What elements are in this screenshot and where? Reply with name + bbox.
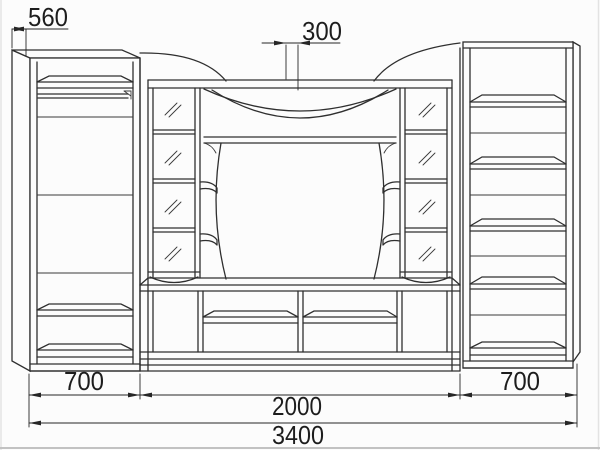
tv-niche <box>200 137 400 279</box>
left-glass-column <box>148 88 200 283</box>
right-bookcase-section <box>463 42 580 368</box>
shelf-bracket <box>204 143 216 153</box>
left-top-slab <box>12 50 140 58</box>
dimension-label-300: 300 <box>302 16 342 46</box>
glass-shelf <box>405 130 447 232</box>
barrel-curve-left <box>216 143 226 279</box>
right-side-panel <box>573 42 580 362</box>
dimension-label-2000: 2000 <box>272 391 322 421</box>
glass-shelf <box>153 130 195 232</box>
tv-stand <box>140 278 460 371</box>
glass-hatch <box>165 103 181 261</box>
stand-mid-shelf <box>203 311 397 323</box>
center-tv-section <box>140 43 460 371</box>
left-wardrobe-section <box>12 50 140 371</box>
left-wing-curve <box>140 53 226 81</box>
valance-curve <box>204 89 396 111</box>
dimension-label-700-left: 700 <box>64 366 104 396</box>
shelf-bracket <box>384 143 396 153</box>
dimension-label-700-right: 700 <box>500 366 540 396</box>
column-curved-base <box>148 272 200 283</box>
furniture-technical-drawing: 560 300 700 2000 <box>0 0 600 450</box>
right-glass-column <box>400 88 452 283</box>
dimension-700-right: 700 <box>460 366 577 397</box>
stand-base <box>140 352 460 371</box>
right-wing-curve <box>374 43 460 81</box>
dimension-3400: 3400 <box>29 420 577 450</box>
left-front-frame <box>30 58 140 371</box>
dimension-label-560: 560 <box>28 2 68 32</box>
stand-divider <box>153 291 447 352</box>
top-canopy <box>140 43 460 118</box>
dimension-560: 560 <box>12 2 68 56</box>
barrel-curve-right <box>374 143 384 279</box>
dimension-300: 300 <box>262 16 342 90</box>
left-side-panel <box>12 50 30 371</box>
dimension-label-3400: 3400 <box>272 420 324 450</box>
niche-floor <box>140 278 460 291</box>
glass-hatch <box>419 103 435 261</box>
valance-curve <box>212 90 388 118</box>
dimension-2000: 2000 <box>140 391 460 421</box>
right-front-frame <box>463 42 573 368</box>
technical-drawing-page: 560 300 700 2000 <box>0 0 600 450</box>
side-mini-shelf <box>200 182 400 245</box>
column-curved-base <box>400 272 452 283</box>
